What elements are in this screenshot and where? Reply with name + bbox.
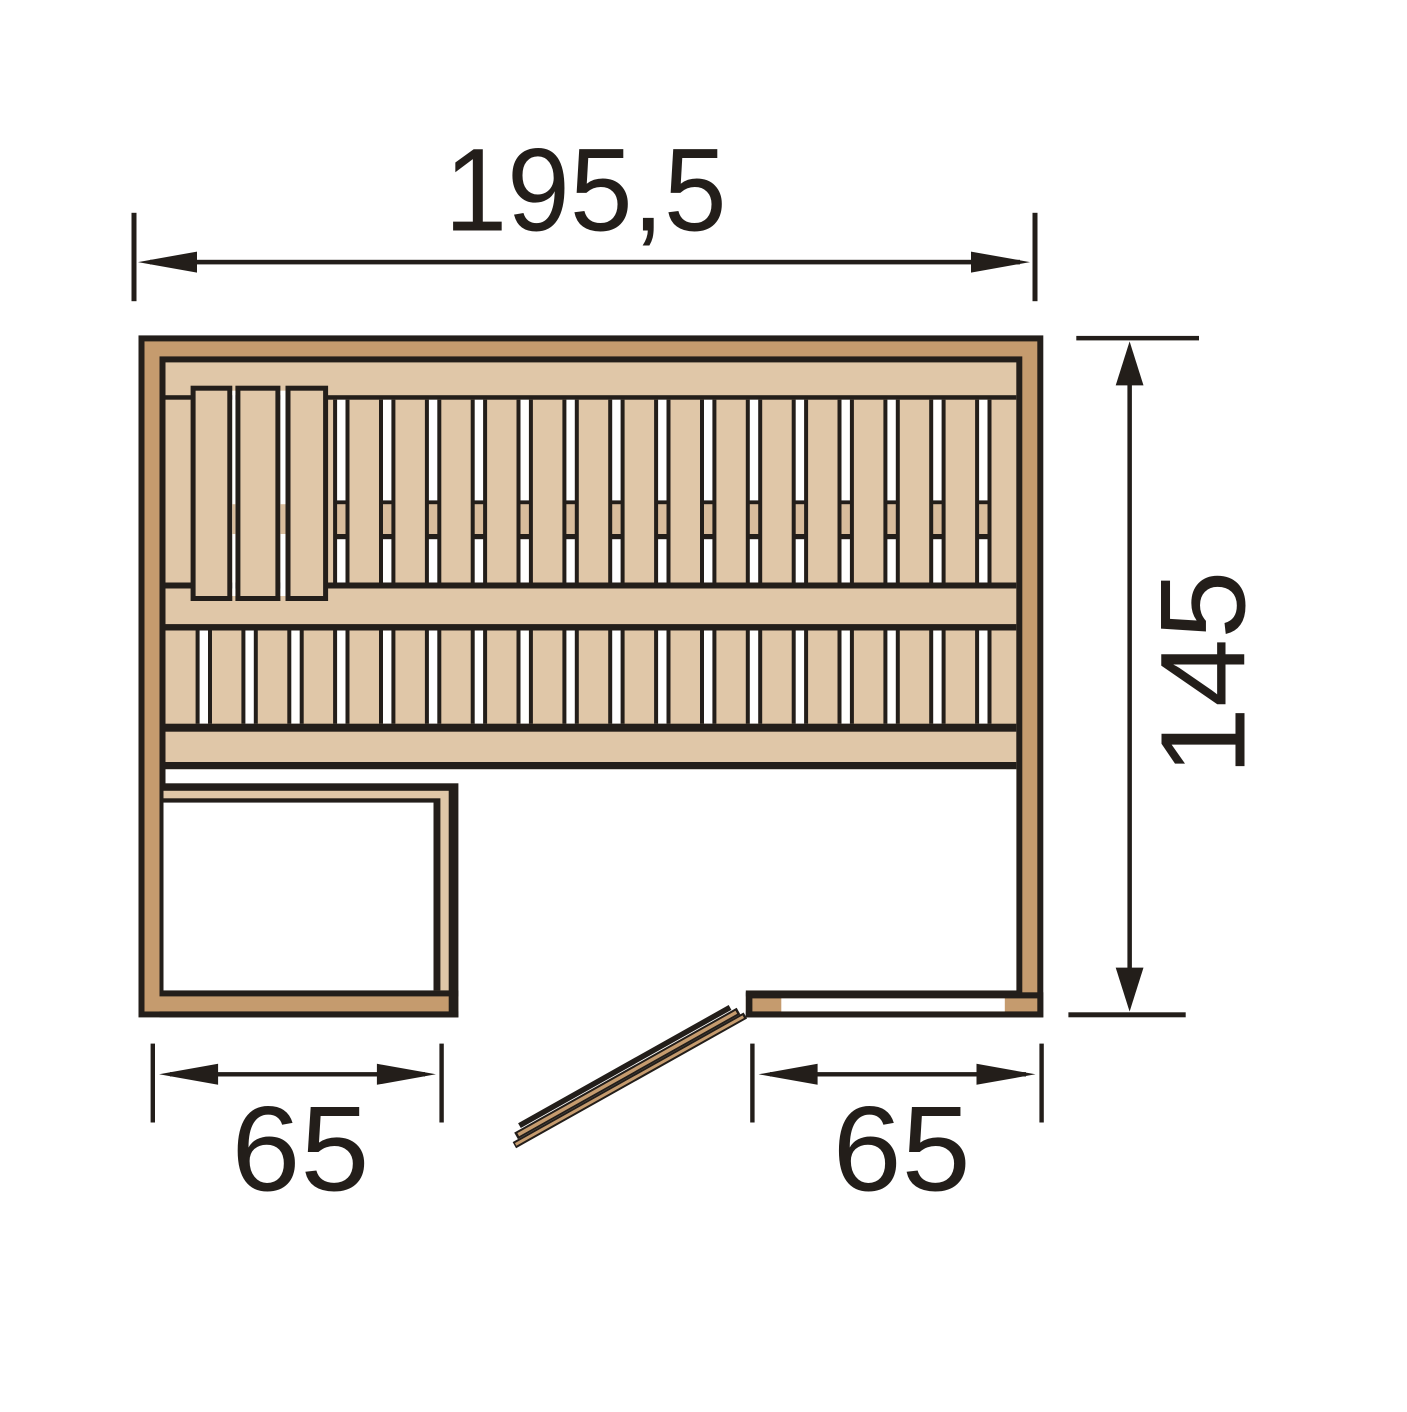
svg-text:195,5: 195,5 <box>445 125 727 257</box>
svg-text:65: 65 <box>833 1081 971 1217</box>
svg-text:65: 65 <box>231 1081 369 1217</box>
svg-text:145: 145 <box>1135 571 1271 776</box>
